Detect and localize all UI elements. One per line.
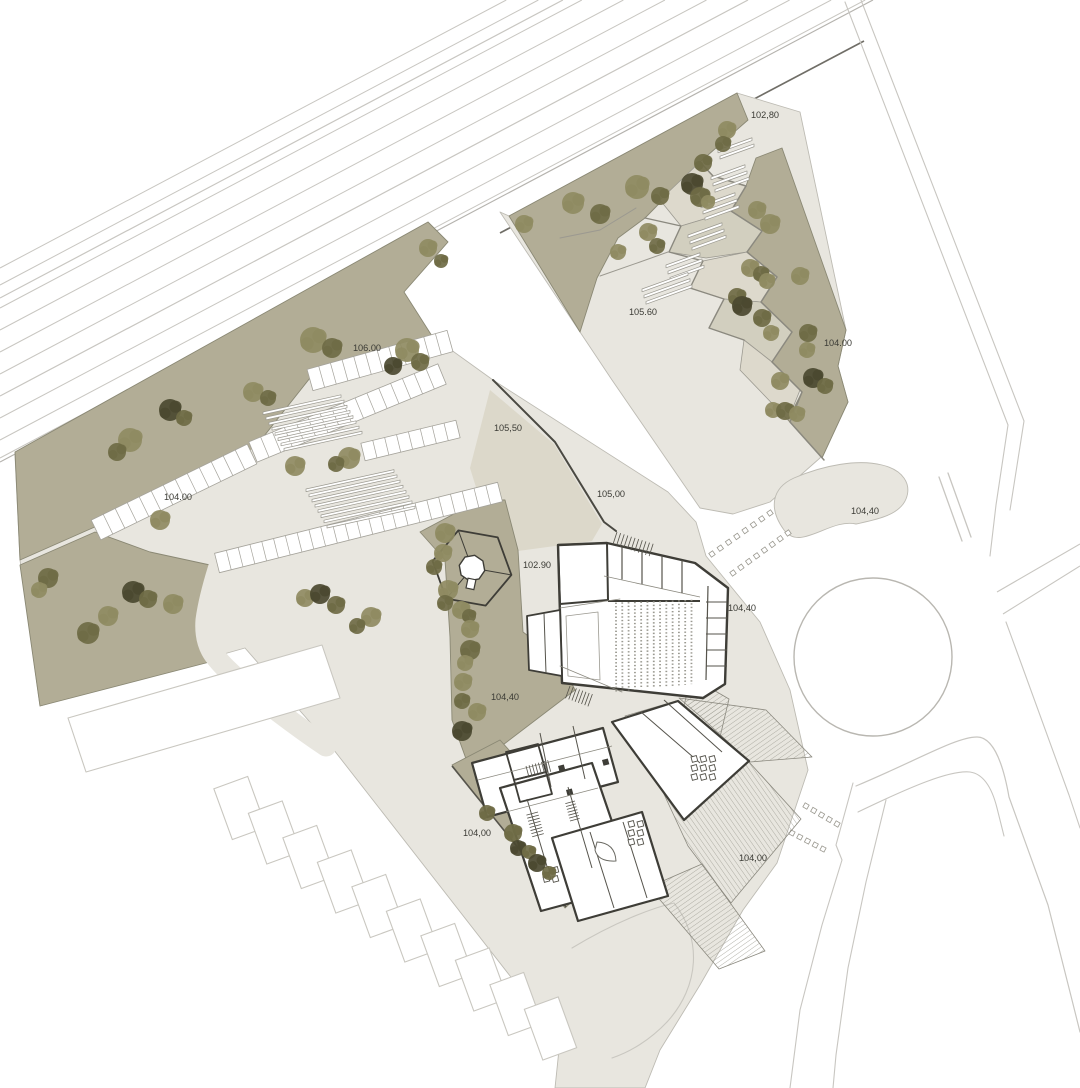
elevation-label: 104.00 xyxy=(824,338,852,348)
elevation-label: 102.90 xyxy=(523,560,551,570)
elevation-label: 104,40 xyxy=(491,692,519,702)
elevation-label: 105.60 xyxy=(629,307,657,317)
context-roads xyxy=(790,0,1080,1088)
elevation-label: 102,80 xyxy=(751,110,779,120)
site-plan-drawing: 102,80105.60104.00106.00104.00105,50105,… xyxy=(0,0,1080,1088)
elevation-label: 106.00 xyxy=(353,343,381,353)
elevation-label: 105,00 xyxy=(597,489,625,499)
elevation-label: 104.00 xyxy=(164,492,192,502)
elevation-label: 104,40 xyxy=(728,603,756,613)
elevation-label: 104,00 xyxy=(739,853,767,863)
elevation-label: 105,50 xyxy=(494,423,522,433)
elevation-label: 104,00 xyxy=(463,828,491,838)
site-plan-canvas: 102,80105.60104.00106.00104.00105,50105,… xyxy=(0,0,1080,1088)
roundabout xyxy=(794,578,952,736)
elevation-label: 104,40 xyxy=(851,506,879,516)
